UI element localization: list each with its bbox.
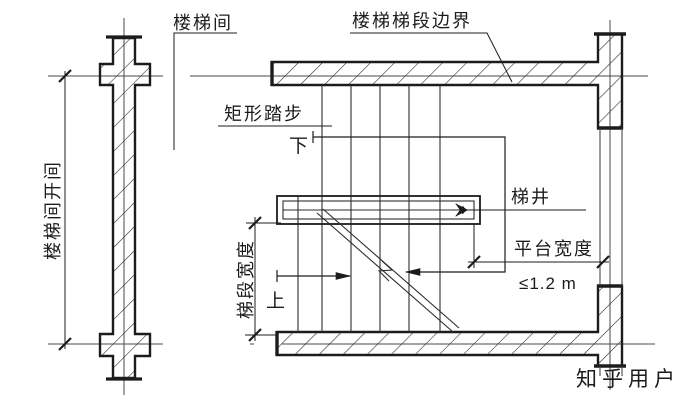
label-platform-width: 平台宽度 [514, 239, 594, 259]
stair-plan-drawing: 楼梯间 楼梯梯段边界 矩形踏步 下 上 梯井 平台宽度 ≤1.2 m 梯段宽度 … [0, 0, 678, 402]
label-stair-well: 梯井 [511, 187, 551, 207]
plan-walls [272, 34, 626, 376]
label-leaders [174, 33, 512, 150]
label-platform-width-limit: ≤1.2 m [519, 274, 577, 293]
label-flight-boundary: 楼梯梯段边界 [352, 11, 472, 31]
stair-treads [298, 85, 474, 332]
stairwell-room-leader [174, 33, 237, 150]
figure-canvas: 楼梯间 楼梯梯段边界 矩形踏步 下 上 梯井 平台宽度 ≤1.2 m 梯段宽度 … [0, 0, 678, 402]
label-bay-width: 楼梯间开间 [43, 160, 63, 260]
left-wall-outline [100, 38, 150, 378]
label-flight-width: 梯段宽度 [236, 239, 256, 319]
top-wall [272, 34, 622, 128]
direction-lines [277, 131, 505, 282]
left-wall-section [100, 37, 150, 379]
stair-well-railing [277, 196, 480, 224]
bottom-wall [277, 286, 622, 366]
watermark-zhihu-user: 知乎用户 [576, 368, 678, 391]
flight-break-line [317, 209, 459, 332]
label-stairwell-room: 楼梯间 [173, 13, 233, 33]
label-up: 上 [266, 290, 287, 312]
label-down: 下 [289, 136, 310, 157]
break-line-zigzag [379, 261, 392, 281]
tread-lines [298, 85, 440, 332]
label-rectangular-tread: 矩形踏步 [224, 104, 304, 124]
